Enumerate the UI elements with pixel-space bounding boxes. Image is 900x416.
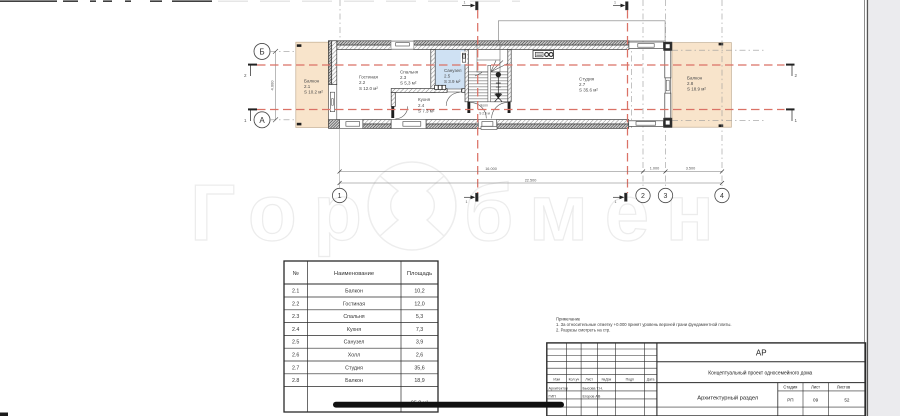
svg-text:Спальня: Спальня [343,314,364,320]
svg-text:2.7: 2.7 [579,82,586,87]
svg-text:Холл: Холл [348,353,360,359]
svg-text:2.6: 2.6 [292,353,299,359]
svg-text:2.4: 2.4 [292,327,299,333]
svg-text:Листов: Листов [837,385,850,390]
svg-text:Егоров АВ: Егоров АВ [583,394,601,398]
svg-text:№Док: №Док [602,377,612,381]
svg-text:Лист: Лист [585,377,593,381]
svg-text:Площадь: Площадь [407,271,432,277]
svg-text:2.3: 2.3 [400,75,407,80]
svg-text:S 7.3 м²: S 7.3 м² [418,108,435,113]
svg-text:S 10.2 м²: S 10.2 м² [304,90,323,95]
svg-text:2: 2 [641,193,645,200]
svg-text:Балкон: Балкон [345,378,363,384]
svg-text:Кухня: Кухня [347,327,361,333]
svg-text:Подп: Подп [626,377,634,381]
svg-text:Студия: Студия [345,365,363,371]
svg-text:S 12.0 м²: S 12.0 м² [359,86,378,91]
svg-text:Кухня: Кухня [418,97,431,102]
svg-text:3,9: 3,9 [416,340,423,346]
svg-text:12,0: 12,0 [414,301,424,307]
svg-text:2.3: 2.3 [292,314,299,320]
svg-text:1: 1 [338,193,342,200]
svg-text:52: 52 [844,398,850,403]
svg-text:4.000: 4.000 [270,80,275,91]
svg-text:1: 1 [466,200,468,204]
svg-text:2,6: 2,6 [416,353,423,359]
svg-text:09: 09 [813,398,819,403]
svg-text:2.5: 2.5 [444,73,451,78]
svg-text:Б: Б [259,47,264,56]
svg-text:2.8: 2.8 [687,81,694,86]
svg-text:1: 1 [615,200,617,204]
svg-text:S 18.9 м²: S 18.9 м² [687,87,706,92]
svg-text:А: А [259,116,265,125]
svg-text:2.2: 2.2 [359,80,366,85]
svg-text:3.500: 3.500 [686,166,696,170]
svg-text:Гостиная: Гостиная [359,75,378,80]
svg-text:Архитектор: Архитектор [549,386,568,390]
svg-text:4: 4 [720,193,724,200]
svg-text:АР: АР [756,349,767,358]
svg-text:Дата: Дата [647,377,655,381]
svg-text:2.2: 2.2 [292,301,299,307]
svg-text:16.000: 16.000 [485,167,497,171]
svg-text:S 5,3 м²: S 5,3 м² [400,81,417,86]
svg-text:Балкон: Балкон [687,76,703,81]
svg-text:Гор: Гор [190,168,362,257]
svg-text:7,3: 7,3 [416,327,423,333]
svg-text:10,2: 10,2 [414,289,424,295]
svg-text:Гостиная: Гостиная [343,301,365,307]
svg-text:Студия: Студия [579,77,595,82]
svg-text:Спальня: Спальня [400,70,419,75]
svg-text:2.5: 2.5 [292,340,299,346]
svg-text:5,3: 5,3 [416,314,423,320]
svg-text:Концептуальный проект односеме: Концептуальный проект односемейного дома [708,369,812,376]
svg-text:1.000: 1.000 [650,166,660,170]
svg-text:2.7: 2.7 [292,365,299,371]
svg-text:22.500: 22.500 [525,178,537,182]
svg-text:1: 1 [614,1,616,5]
svg-text:Лист: Лист [811,385,820,390]
svg-text:1. За относительные отметку +0: 1. За относительные отметку +0.000 приня… [556,322,732,327]
svg-text:Стадия: Стадия [783,385,797,390]
svg-text:1: 1 [464,1,466,5]
svg-text:Санузел: Санузел [444,68,462,73]
svg-text:ГИП: ГИП [549,394,557,398]
svg-text:18,9: 18,9 [414,378,424,384]
svg-text:Архитектурный раздел: Архитектурный раздел [697,395,758,402]
svg-text:3: 3 [664,193,668,200]
svg-text:Наименование: Наименование [334,271,374,277]
svg-text:Кол.уч: Кол.уч [569,377,580,381]
svg-text:2.1: 2.1 [304,84,311,89]
svg-text:S 2.6 м: S 2.6 м [479,111,490,115]
svg-text:Холл: Холл [480,103,488,107]
svg-text:Примечание: Примечание [556,317,581,322]
svg-text:Балкон: Балкон [304,79,320,84]
svg-text:35,6: 35,6 [414,365,424,371]
svg-text:№: № [293,271,299,277]
svg-text:Изм: Изм [553,377,560,381]
svg-text:Бысова Т.Н.: Бысова Т.Н. [583,386,604,390]
svg-text:2. Разрезы смотреть на стр.: 2. Разрезы смотреть на стр. [556,328,610,333]
svg-text:S 35.6 м²: S 35.6 м² [579,88,598,93]
svg-text:S 3.9 м²: S 3.9 м² [444,79,461,84]
svg-text:2.8: 2.8 [292,378,299,384]
svg-text:2.4: 2.4 [418,103,425,108]
svg-text:РП: РП [787,398,793,403]
svg-text:2.1: 2.1 [292,289,299,295]
svg-text:Балкон: Балкон [345,289,363,295]
svg-text:Санузел: Санузел [344,340,365,346]
